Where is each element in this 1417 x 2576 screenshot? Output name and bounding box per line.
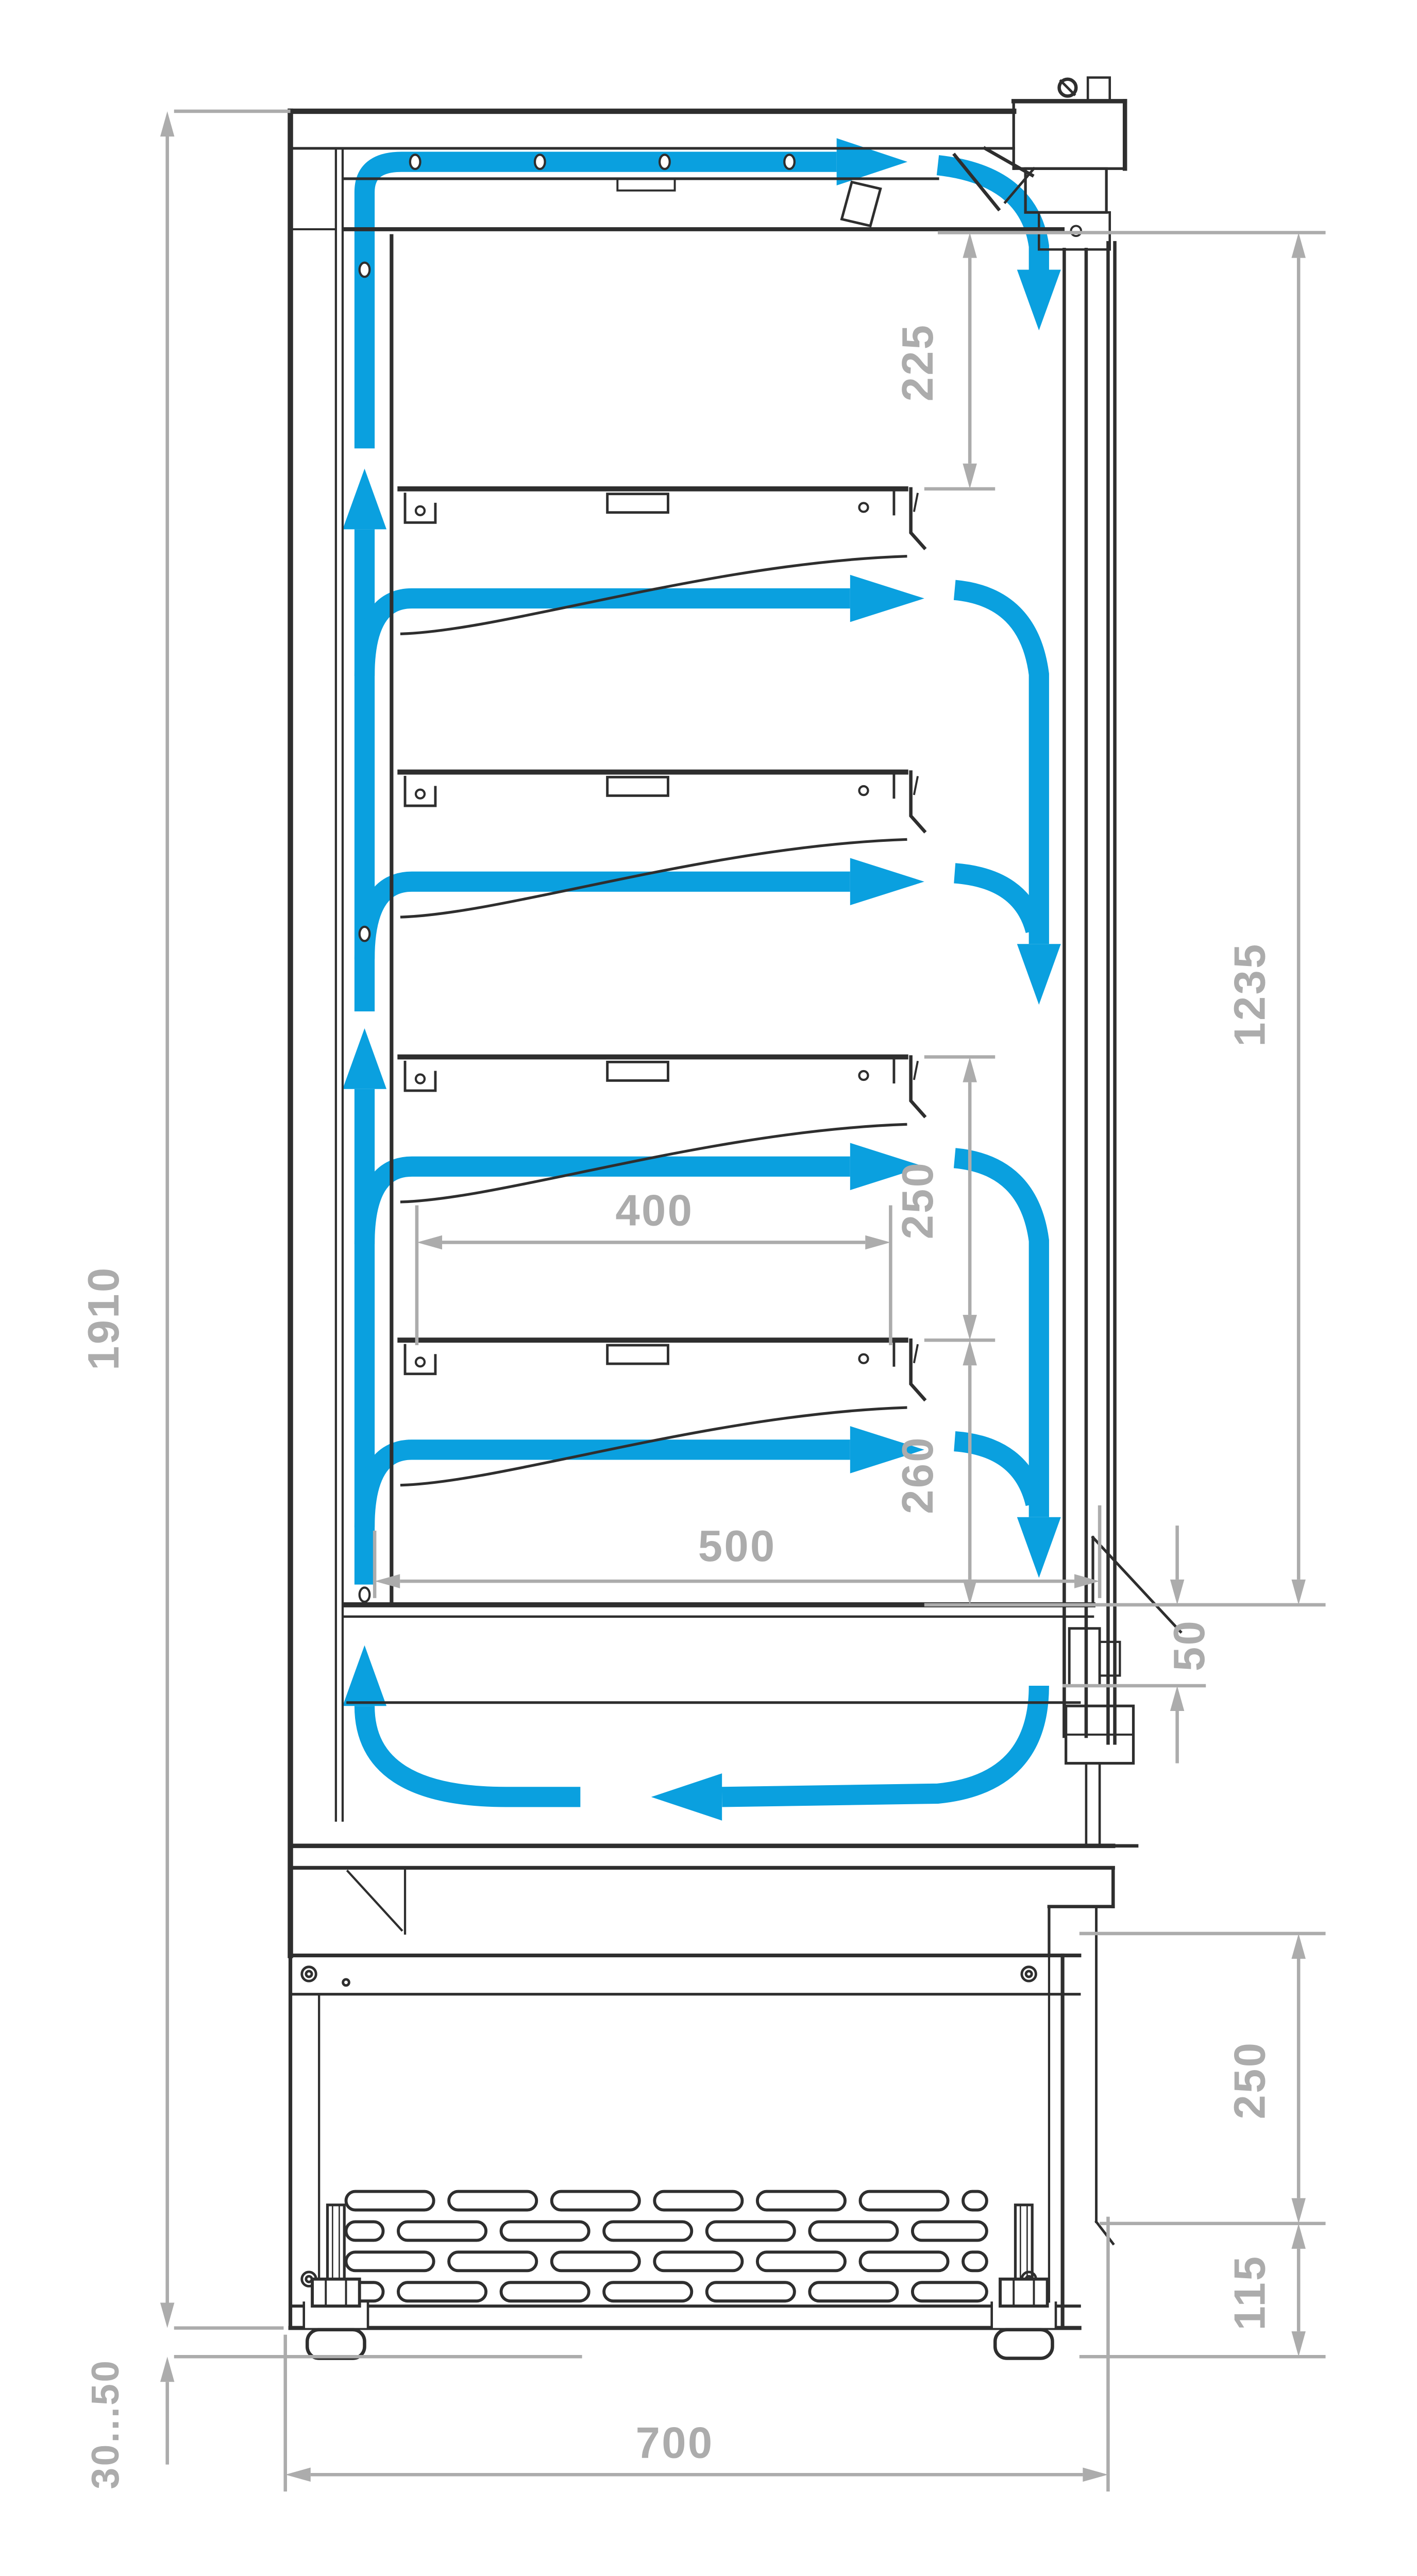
cabinet-cross-section-drawing: 1910 30...50 700 225 250	[0, 0, 1417, 2576]
dim-base-height: 250	[1226, 1934, 1306, 2224]
dim-label-overall-height: 1910	[79, 1266, 128, 1370]
bottom-return-arrow	[651, 1686, 1039, 1821]
shelves	[400, 489, 924, 1485]
dim-label-base-height: 250	[1226, 2041, 1275, 2120]
dim-top-to-shelf1: 225	[893, 233, 977, 489]
dim-opening-height: 1235	[1226, 233, 1306, 1605]
dim-air-gap: 50	[1165, 1526, 1214, 1763]
foot-left	[304, 2205, 368, 2359]
front-curtain-arrows	[938, 165, 1061, 1578]
base-corner-brace	[348, 1871, 402, 1930]
glass-door	[1064, 243, 1115, 1743]
lamp-baffle	[841, 182, 880, 226]
dim-label-shelf-depth: 400	[615, 1187, 694, 1235]
dim-label-air-gap: 50	[1165, 1619, 1214, 1671]
deck-front-flap	[1093, 1537, 1180, 1632]
extension-lines	[174, 111, 1326, 2492]
cabinet-structure	[291, 78, 1181, 2359]
vent-grille	[346, 2192, 987, 2301]
dim-label-deck-depth: 500	[698, 1522, 777, 1571]
dim-label-depth: 700	[636, 2419, 714, 2468]
shelf-1	[400, 489, 924, 634]
shelf-4	[400, 1340, 924, 1485]
dim-label-shelf4-to-deck: 260	[893, 1436, 942, 1514]
dim-label-opening-height: 1235	[1226, 942, 1275, 1046]
base-bolts	[302, 1967, 1036, 2291]
dim-label-vent-height: 115	[1226, 2255, 1275, 2330]
machine-base	[291, 1868, 1114, 2358]
bottom-door-sill	[1066, 1629, 1137, 1846]
foot-right	[992, 2205, 1056, 2359]
dim-overall-height: 1910	[79, 111, 175, 2328]
dim-shelf-depth: 400	[417, 1187, 890, 1249]
dim-label-feet-range: 30...50	[83, 2359, 127, 2489]
dim-shelf4-to-deck: 260	[893, 1340, 977, 1605]
bottom-deck	[291, 1537, 1181, 1868]
shelf-supply-arrows	[365, 575, 924, 1528]
dim-label-shelf-spacing: 250	[893, 1161, 942, 1240]
dim-vent-height: 115	[1226, 2224, 1306, 2357]
dim-label-top-to-shelf1: 225	[893, 324, 942, 402]
dim-shelf-spacing: 250	[893, 1057, 977, 1341]
shelf-2	[400, 772, 924, 917]
shelf-3	[400, 1057, 924, 1202]
dim-deck-depth: 500	[375, 1522, 1100, 1588]
dim-feet-range: 30...50	[83, 2357, 175, 2489]
dim-depth: 700	[285, 2419, 1108, 2482]
dimension-annotations: 1910 30...50 700 225 250	[79, 111, 1326, 2492]
door-top-hinge	[1025, 168, 1106, 212]
rear-duct-up-arrow	[343, 138, 907, 1797]
